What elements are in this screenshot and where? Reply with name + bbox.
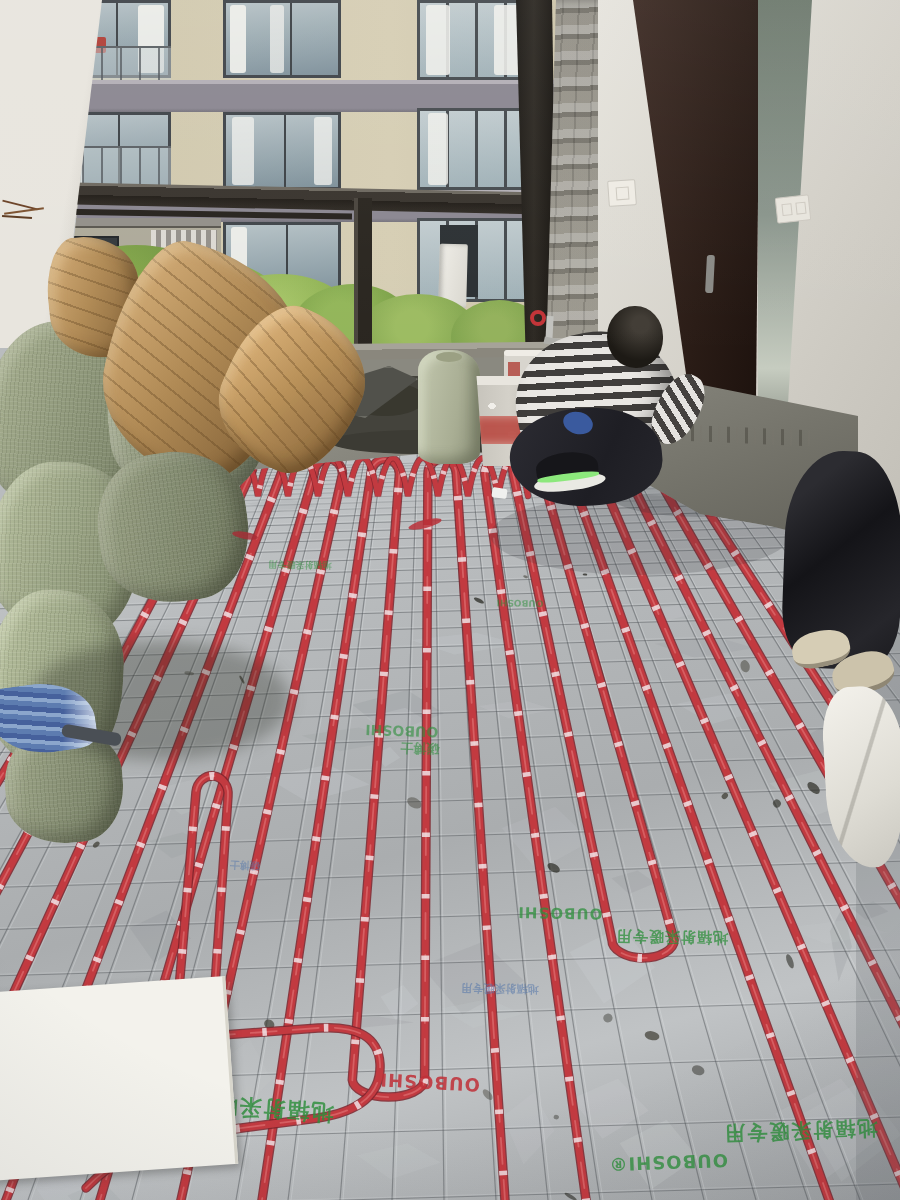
foil-print-tagline: 地辐射采暖专用: [616, 927, 729, 947]
foam-board: [0, 976, 238, 1182]
foil-print-subbrand: 碳博士: [400, 740, 440, 756]
bay-window: [417, 218, 535, 302]
curtain: [314, 117, 332, 185]
foil-print-blue: 地辐射采暖专用: [461, 981, 539, 995]
renovation-room-photo: 地辐射采暖专用 OUBOSHI OUBOSHI OUBOSHI 地辐射采暖专用 …: [0, 0, 900, 1200]
foil-print-brand-far: OUBOSHI: [496, 598, 543, 609]
light-switch: [775, 194, 812, 223]
bay-window: [417, 108, 535, 190]
curtain: [230, 5, 246, 73]
foil-print-blue: 碳博士: [230, 859, 262, 872]
protruding-wires: [2, 196, 46, 230]
curtain: [270, 5, 284, 73]
window-frame-mullion: [354, 198, 372, 366]
foil-print-brand: OUBOSHI: [365, 722, 438, 741]
standing-sandbag: [418, 350, 480, 464]
foil-print-brand-red: OUBOSHI: [379, 1069, 481, 1095]
window-mullion: [284, 115, 286, 187]
foil-print-tagline: 地辐射采暖专用: [723, 1116, 879, 1145]
foil-print-brand-reg: OUBOSHI®: [608, 1150, 728, 1175]
worker: [505, 300, 700, 515]
worker-head: [607, 306, 663, 368]
curtain: [428, 113, 448, 185]
apartment-window: [223, 112, 341, 190]
foil-print-tagline-far: 地辐射采暖专用: [268, 559, 332, 570]
window-mullion: [290, 3, 292, 75]
foil-print-brand: OUBOSHI: [517, 903, 602, 922]
curtain: [232, 117, 254, 185]
light-switch: [607, 179, 637, 207]
worker-sneaker: [530, 445, 614, 504]
curtain: [426, 5, 450, 75]
balcony-slab: [55, 218, 221, 228]
cleaning-brush: [0, 664, 119, 790]
apartment-window: [223, 0, 341, 78]
second-worker: [780, 445, 900, 725]
